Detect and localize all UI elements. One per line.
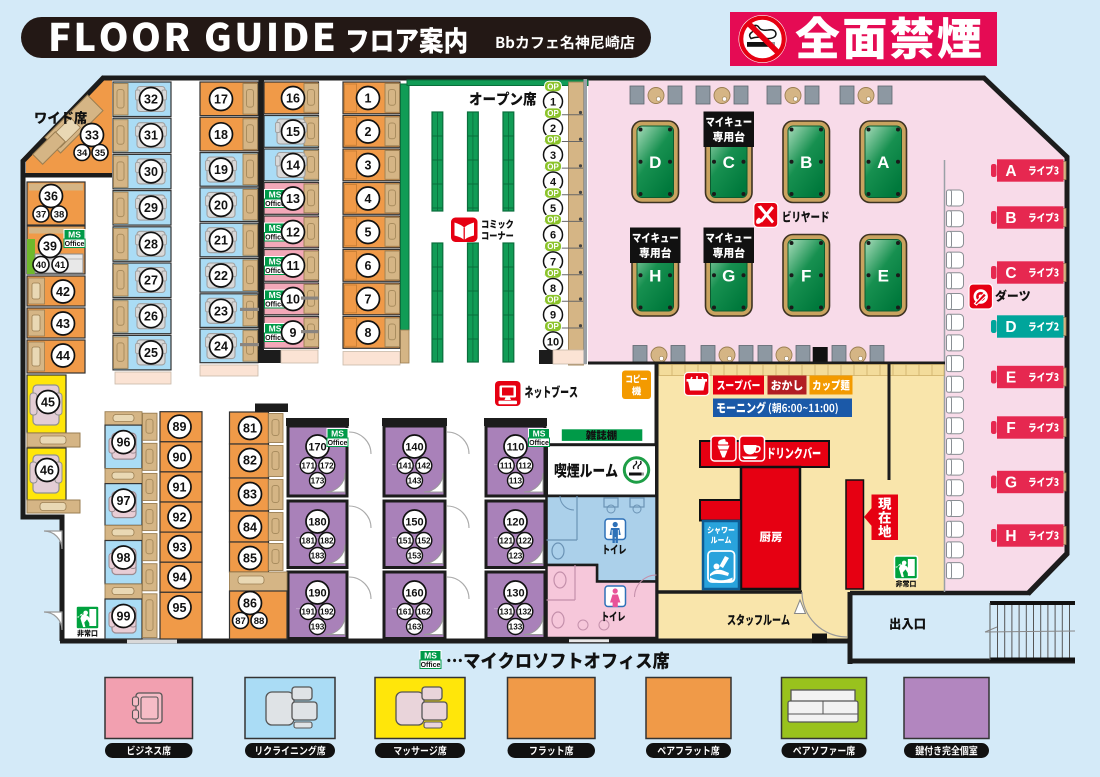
svg-text:190: 190 <box>308 587 326 599</box>
svg-text:34: 34 <box>77 148 88 159</box>
svg-text:B: B <box>1005 210 1016 227</box>
svg-text:171: 171 <box>301 461 315 470</box>
svg-text:D: D <box>649 153 661 172</box>
svg-text:19: 19 <box>214 163 228 177</box>
svg-text:152: 152 <box>417 536 431 545</box>
svg-text:C: C <box>723 153 735 172</box>
svg-text:162: 162 <box>417 607 431 616</box>
svg-text:2: 2 <box>550 123 556 135</box>
svg-text:18: 18 <box>214 128 228 142</box>
svg-text:B: B <box>800 153 812 172</box>
svg-text:91: 91 <box>173 480 187 494</box>
svg-text:15: 15 <box>286 125 300 139</box>
svg-text:6: 6 <box>550 230 556 242</box>
svg-text:38: 38 <box>54 209 65 220</box>
svg-text:35: 35 <box>95 148 106 159</box>
svg-text:5: 5 <box>550 203 556 215</box>
svg-text:123: 123 <box>509 551 523 560</box>
svg-text:191: 191 <box>301 607 315 616</box>
svg-text:8: 8 <box>550 283 556 295</box>
svg-text:OP: OP <box>547 269 559 278</box>
svg-text:43: 43 <box>56 317 70 331</box>
svg-text:85: 85 <box>243 552 257 566</box>
svg-text:181: 181 <box>301 536 315 545</box>
svg-text:11: 11 <box>286 259 299 273</box>
svg-text:46: 46 <box>40 464 54 478</box>
svg-text:F: F <box>1006 420 1015 437</box>
svg-text:8: 8 <box>365 326 372 340</box>
svg-text:99: 99 <box>117 610 131 624</box>
svg-text:131: 131 <box>499 607 513 616</box>
svg-text:7: 7 <box>365 293 372 307</box>
svg-text:160: 160 <box>405 587 423 599</box>
svg-text:150: 150 <box>405 516 423 528</box>
svg-text:183: 183 <box>311 551 325 560</box>
svg-text:OP: OP <box>547 109 559 118</box>
svg-text:29: 29 <box>144 201 158 215</box>
svg-text:151: 151 <box>398 536 412 545</box>
svg-text:30: 30 <box>144 165 158 179</box>
svg-text:173: 173 <box>311 476 325 485</box>
svg-text:13: 13 <box>286 192 300 206</box>
svg-text:3: 3 <box>550 150 556 162</box>
svg-text:16: 16 <box>286 92 300 106</box>
svg-text:H: H <box>649 266 661 285</box>
svg-text:24: 24 <box>214 340 228 354</box>
svg-text:A: A <box>877 153 889 172</box>
svg-text:182: 182 <box>320 536 334 545</box>
svg-text:OP: OP <box>547 136 559 145</box>
svg-text:4: 4 <box>365 192 372 206</box>
svg-text:26: 26 <box>144 310 158 324</box>
svg-text:40: 40 <box>36 260 47 271</box>
svg-text:2: 2 <box>365 125 372 139</box>
svg-text:E: E <box>878 266 889 285</box>
svg-text:87: 87 <box>235 616 246 627</box>
svg-text:193: 193 <box>311 622 325 631</box>
svg-text:5: 5 <box>365 226 372 240</box>
svg-text:42: 42 <box>56 285 70 299</box>
svg-text:86: 86 <box>243 597 257 611</box>
svg-text:132: 132 <box>518 607 532 616</box>
svg-text:161: 161 <box>398 607 412 616</box>
svg-text:37: 37 <box>36 209 47 220</box>
svg-text:31: 31 <box>144 129 158 143</box>
svg-text:OP: OP <box>547 216 559 225</box>
svg-text:9: 9 <box>550 310 556 322</box>
svg-text:20: 20 <box>214 198 228 212</box>
svg-text:OP: OP <box>547 82 559 91</box>
svg-text:25: 25 <box>144 346 158 360</box>
svg-text:1: 1 <box>365 92 372 106</box>
svg-text:110: 110 <box>507 441 525 453</box>
svg-text:170: 170 <box>308 441 326 453</box>
svg-text:192: 192 <box>320 607 334 616</box>
svg-text:95: 95 <box>173 601 187 615</box>
svg-text:122: 122 <box>518 536 532 545</box>
svg-text:1: 1 <box>550 96 556 108</box>
svg-text:98: 98 <box>117 551 131 565</box>
svg-text:9: 9 <box>290 326 297 340</box>
svg-text:111: 111 <box>500 461 513 470</box>
svg-text:140: 140 <box>405 441 423 453</box>
svg-text:142: 142 <box>417 461 431 470</box>
svg-text:89: 89 <box>173 420 187 434</box>
svg-text:C: C <box>1005 265 1016 282</box>
svg-text:10: 10 <box>547 336 559 348</box>
svg-text:27: 27 <box>144 274 158 288</box>
svg-text:G: G <box>1005 475 1017 492</box>
svg-text:12: 12 <box>286 226 300 240</box>
svg-text:A: A <box>1005 163 1016 180</box>
svg-text:81: 81 <box>243 422 257 436</box>
svg-text:D: D <box>1005 319 1016 336</box>
svg-text:41: 41 <box>55 260 66 271</box>
svg-text:14: 14 <box>286 159 300 173</box>
svg-text:94: 94 <box>173 571 187 585</box>
svg-text:3: 3 <box>365 159 372 173</box>
svg-text:17: 17 <box>214 93 228 107</box>
svg-text:88: 88 <box>254 616 265 627</box>
svg-text:112: 112 <box>518 461 532 470</box>
svg-text:21: 21 <box>214 234 228 248</box>
svg-text:6: 6 <box>365 259 372 273</box>
svg-text:143: 143 <box>408 476 422 485</box>
svg-text:97: 97 <box>117 494 131 508</box>
svg-text:172: 172 <box>320 461 334 470</box>
svg-text:10: 10 <box>286 293 300 307</box>
svg-text:82: 82 <box>243 454 257 468</box>
svg-text:96: 96 <box>117 436 131 450</box>
svg-text:OP: OP <box>547 242 559 251</box>
svg-text:OP: OP <box>547 322 559 331</box>
svg-text:133: 133 <box>509 622 523 631</box>
svg-text:90: 90 <box>173 450 187 464</box>
svg-text:23: 23 <box>214 304 228 318</box>
svg-text:OP: OP <box>547 189 559 198</box>
svg-text:G: G <box>722 266 735 285</box>
svg-text:93: 93 <box>173 541 187 555</box>
svg-text:83: 83 <box>243 488 257 502</box>
svg-text:163: 163 <box>408 622 422 631</box>
svg-text:7: 7 <box>550 256 556 268</box>
svg-text:OP: OP <box>547 296 559 305</box>
svg-text:141: 141 <box>398 461 412 470</box>
svg-text:33: 33 <box>85 129 99 143</box>
svg-text:84: 84 <box>243 521 257 535</box>
svg-text:130: 130 <box>506 587 524 599</box>
svg-text:H: H <box>1005 528 1016 545</box>
svg-text:28: 28 <box>144 237 158 251</box>
svg-text:45: 45 <box>41 396 55 410</box>
svg-text:44: 44 <box>56 349 70 363</box>
svg-text:22: 22 <box>214 269 228 283</box>
svg-text:E: E <box>1006 370 1016 387</box>
svg-text:92: 92 <box>173 511 187 525</box>
svg-text:120: 120 <box>506 516 524 528</box>
svg-text:113: 113 <box>509 476 523 485</box>
svg-text:180: 180 <box>308 516 326 528</box>
svg-text:36: 36 <box>44 190 58 204</box>
svg-text:4: 4 <box>550 176 557 188</box>
svg-text:F: F <box>801 266 811 285</box>
svg-text:OP: OP <box>547 162 559 171</box>
svg-text:121: 121 <box>499 536 513 545</box>
svg-text:32: 32 <box>144 93 158 107</box>
svg-text:39: 39 <box>43 240 57 254</box>
svg-text:153: 153 <box>408 551 422 560</box>
